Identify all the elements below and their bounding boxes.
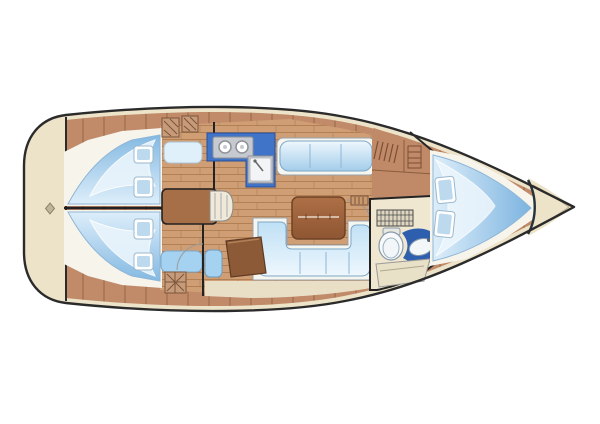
yacht-floor-plan <box>0 0 600 424</box>
saloon-settee-port <box>277 138 375 175</box>
settee-cushion <box>280 141 372 171</box>
pillow <box>134 146 153 163</box>
faucet-base <box>253 159 256 162</box>
burner-center <box>223 145 227 149</box>
hatched-locker-icon <box>162 118 179 137</box>
louver-vent-icon <box>351 196 368 205</box>
aft-starboard-seat-cushion <box>161 251 202 272</box>
pillow <box>134 253 153 270</box>
engine-box <box>162 189 217 224</box>
pillow <box>435 176 457 204</box>
saloon-table <box>292 197 345 239</box>
stern-deck <box>24 115 66 303</box>
burner-center <box>240 145 244 149</box>
hatched-locker-icon <box>182 116 198 132</box>
pillow <box>134 219 153 239</box>
sink-basin <box>250 158 271 181</box>
pillow <box>434 210 456 238</box>
shower-grate-icon <box>377 210 413 226</box>
floor-plan-canvas <box>0 0 600 424</box>
nav-seat-cushion <box>205 250 222 277</box>
pillow <box>134 177 153 197</box>
stern-deck-floor <box>24 115 66 303</box>
toilet-icon <box>379 228 403 260</box>
floor-grate-icon <box>165 272 186 293</box>
companionway <box>162 189 233 224</box>
aft-port-seat-cushion <box>164 142 202 163</box>
